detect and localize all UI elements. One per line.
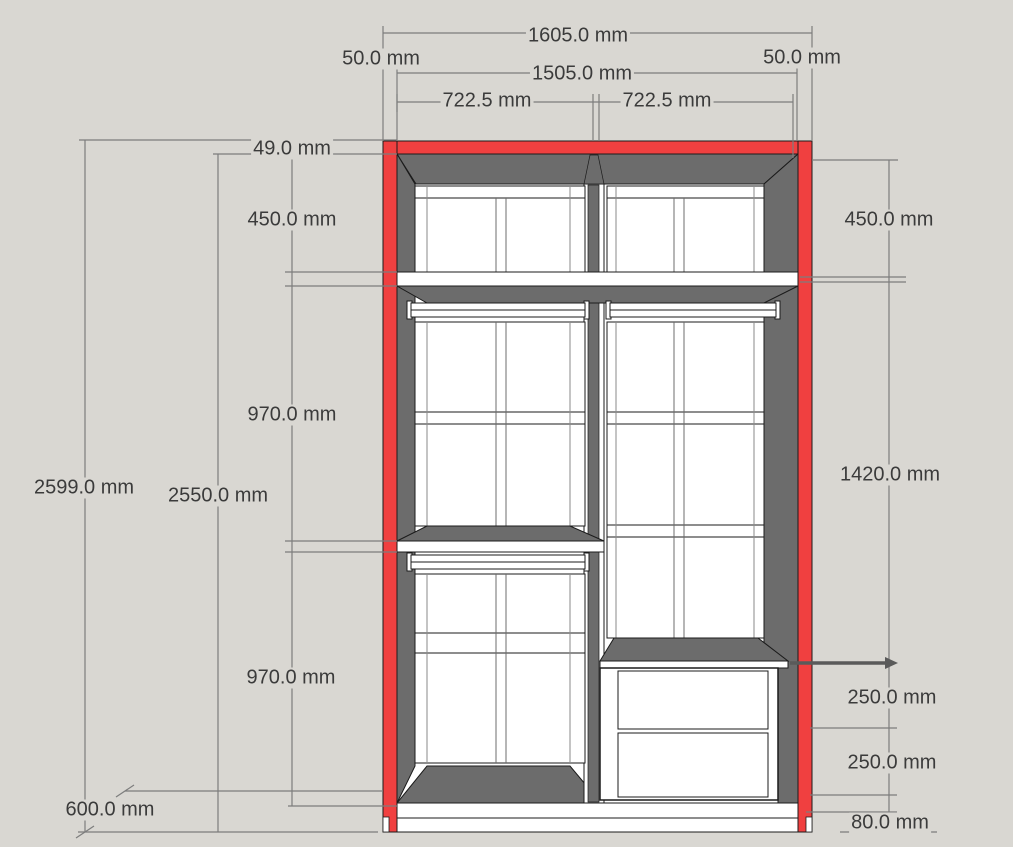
dim-carcass-height: 2550.0 mm (166, 486, 270, 507)
wardrobe-elevation-svg (0, 0, 1013, 847)
left-bay-lower-panel (415, 574, 585, 763)
right-hanging-rail (606, 301, 780, 319)
drawer-top-extension-arrow (885, 657, 898, 669)
dim-right-upper-section: 450.0 mm (843, 210, 936, 231)
wardrobe-dimension-drawing: 1605.0 mm 50.0 mm 50.0 mm 1505.0 mm 722.… (0, 0, 1013, 847)
dim-left-lower-section: 970.0 mm (245, 668, 338, 689)
left-hanging-rail-upper (407, 301, 589, 319)
dim-left-side-thickness: 50.0 mm (340, 49, 422, 70)
left-bay-middle-panel (415, 322, 585, 526)
dim-top-panel-thickness: 49.0 mm (251, 139, 333, 160)
dim-interior-width: 1505.0 mm (530, 64, 634, 85)
floor-panel (397, 766, 601, 803)
dim-overall-height: 2599.0 mm (32, 478, 136, 499)
drawer-front-lower (618, 733, 768, 797)
dim-upper-drawer: 250.0 mm (846, 688, 939, 709)
frame-top-panel (383, 141, 812, 154)
left-foot-notch (383, 817, 389, 832)
drawer-unit-top-surface (600, 638, 788, 661)
dim-overall-width: 1605.0 mm (526, 26, 630, 47)
left-middle-shelf (397, 526, 604, 552)
right-bay-upper-panel (607, 186, 764, 272)
top-shelf (397, 272, 798, 303)
drawer-unit (600, 638, 788, 800)
right-foot-notch (806, 817, 812, 832)
dim-left-bay-width: 722.5 mm (441, 91, 534, 112)
dim-depth: 600.0 mm (64, 800, 157, 821)
frame-right-side-panel (798, 141, 812, 832)
frame-left-side-panel (383, 141, 397, 832)
left-hanging-rail-lower (407, 553, 589, 571)
right-bay-tall-panel (607, 322, 764, 638)
dim-lower-drawer: 250.0 mm (846, 753, 939, 774)
dim-hanging-section: 1420.0 mm (838, 465, 942, 486)
dim-plinth-height: 80.0 mm (849, 813, 931, 834)
left-side-wall (397, 154, 415, 803)
drawer-unit-top-edge (600, 661, 788, 668)
drawer-front-upper (618, 671, 768, 729)
plinth (389, 818, 806, 832)
dim-right-bay-width: 722.5 mm (621, 91, 714, 112)
left-middle-shelf-top (397, 526, 604, 541)
top-shelf-underside (397, 286, 798, 303)
base-panel (397, 803, 798, 818)
dim-right-side-thickness: 50.0 mm (761, 48, 843, 69)
left-bay-upper-panel (415, 186, 585, 272)
dim-left-upper-section: 450.0 mm (246, 210, 339, 231)
dim-left-middle-section: 970.0 mm (246, 405, 339, 426)
